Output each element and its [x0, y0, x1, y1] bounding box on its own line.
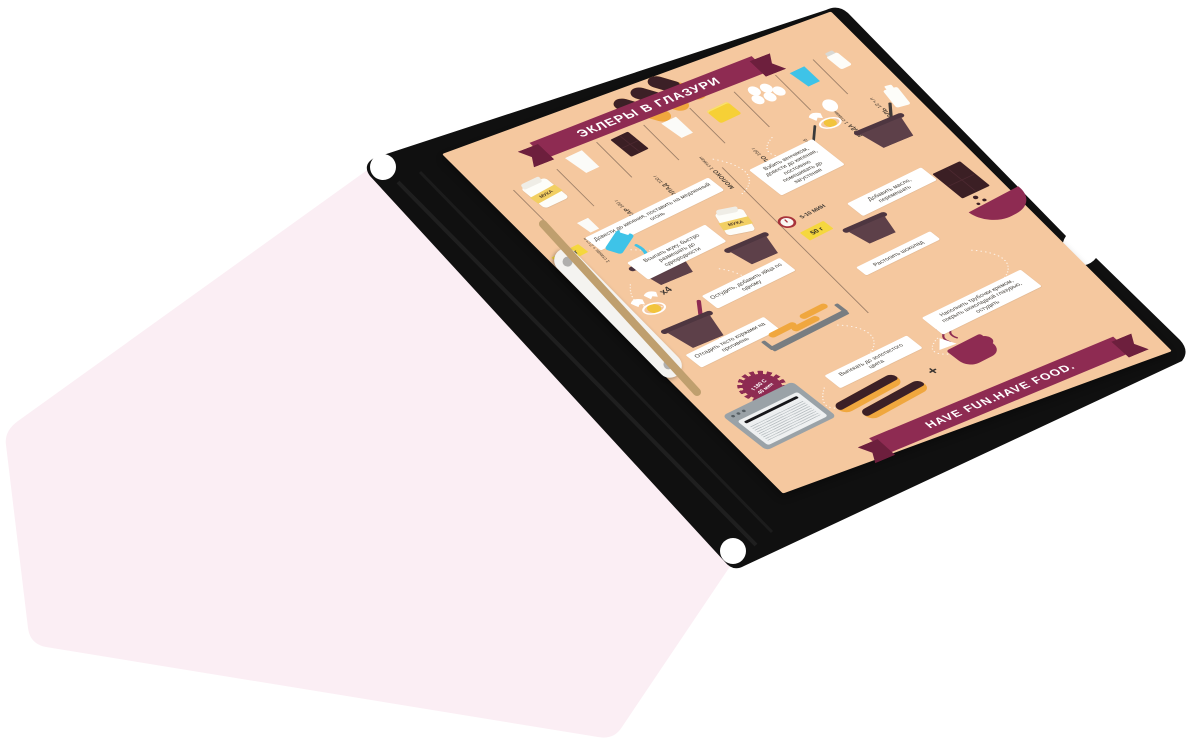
top-rivet [370, 154, 396, 180]
folder-mockup-scene: ЭКЛЕРЫ В ГЛАЗУРИ МУКА 1 стакан + 2 [0, 0, 1200, 738]
bottom-rivet [720, 538, 746, 564]
cracked-egg-icon [799, 96, 855, 131]
water-stream [636, 245, 646, 254]
